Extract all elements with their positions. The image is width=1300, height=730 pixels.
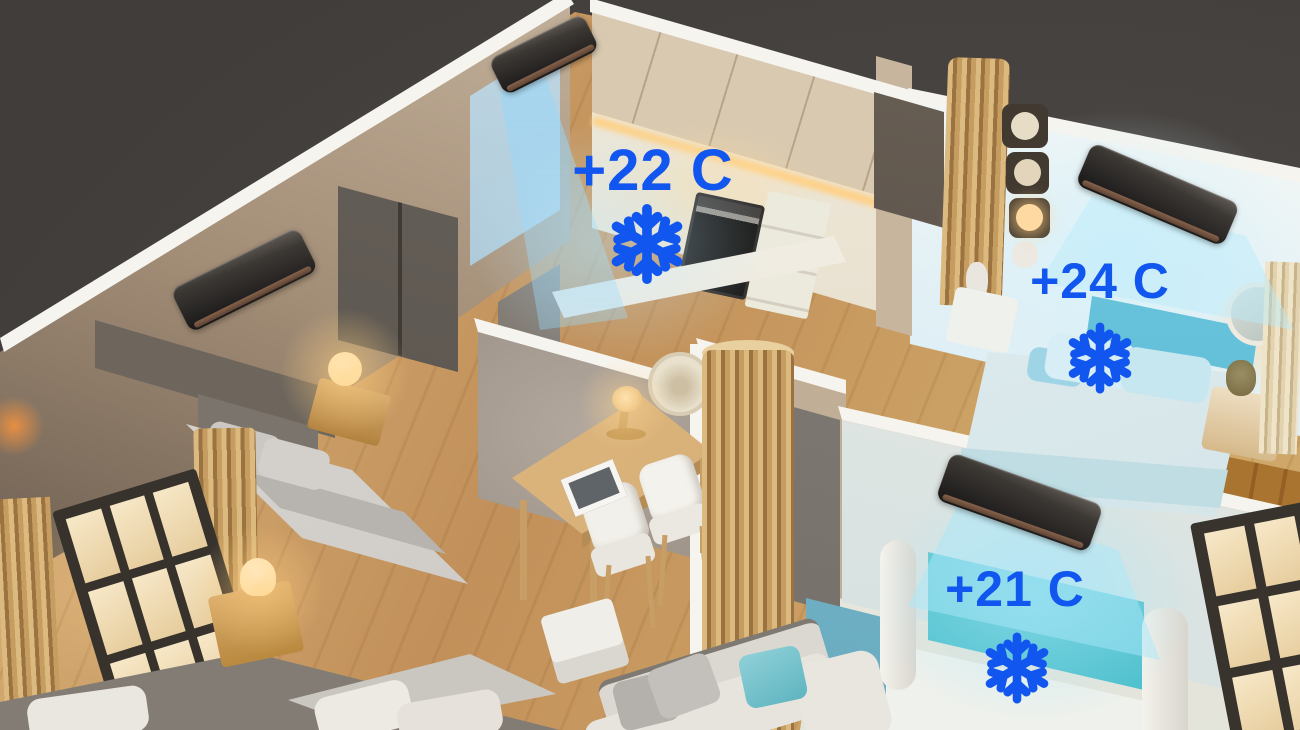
window-pane <box>1268 588 1300 658</box>
shelf-decor-lit <box>1016 204 1043 231</box>
table-leg <box>520 500 527 600</box>
temperature-label-kitchen: +22 C <box>572 142 733 200</box>
snowflake-icon <box>1061 319 1139 397</box>
shelf-decor <box>1014 159 1041 186</box>
plant <box>1226 360 1256 396</box>
warm-glow-nightstand <box>196 524 326 654</box>
window-pane <box>1232 670 1284 730</box>
window-pane <box>1254 516 1300 586</box>
window-pane <box>1204 526 1256 596</box>
window-pane <box>109 495 164 569</box>
warm-glow-table-lamp <box>578 358 670 450</box>
apartment-isometric-render: +22 C +24 C +21 C <box>0 0 1300 730</box>
temperature-label-living: +21 C <box>945 564 1085 614</box>
shelf-decor <box>1011 112 1039 140</box>
temperature-label-bedroom: +24 C <box>1030 256 1170 306</box>
window-pane <box>88 581 143 655</box>
window-pane <box>1282 661 1300 730</box>
window-pane <box>132 568 187 642</box>
warm-glow-lamp-left <box>280 308 410 438</box>
snowflake-icon <box>978 629 1056 707</box>
window-pane <box>1218 598 1270 668</box>
window-pane <box>153 482 208 556</box>
window-pane <box>66 509 121 583</box>
snowflake-icon <box>603 200 691 288</box>
